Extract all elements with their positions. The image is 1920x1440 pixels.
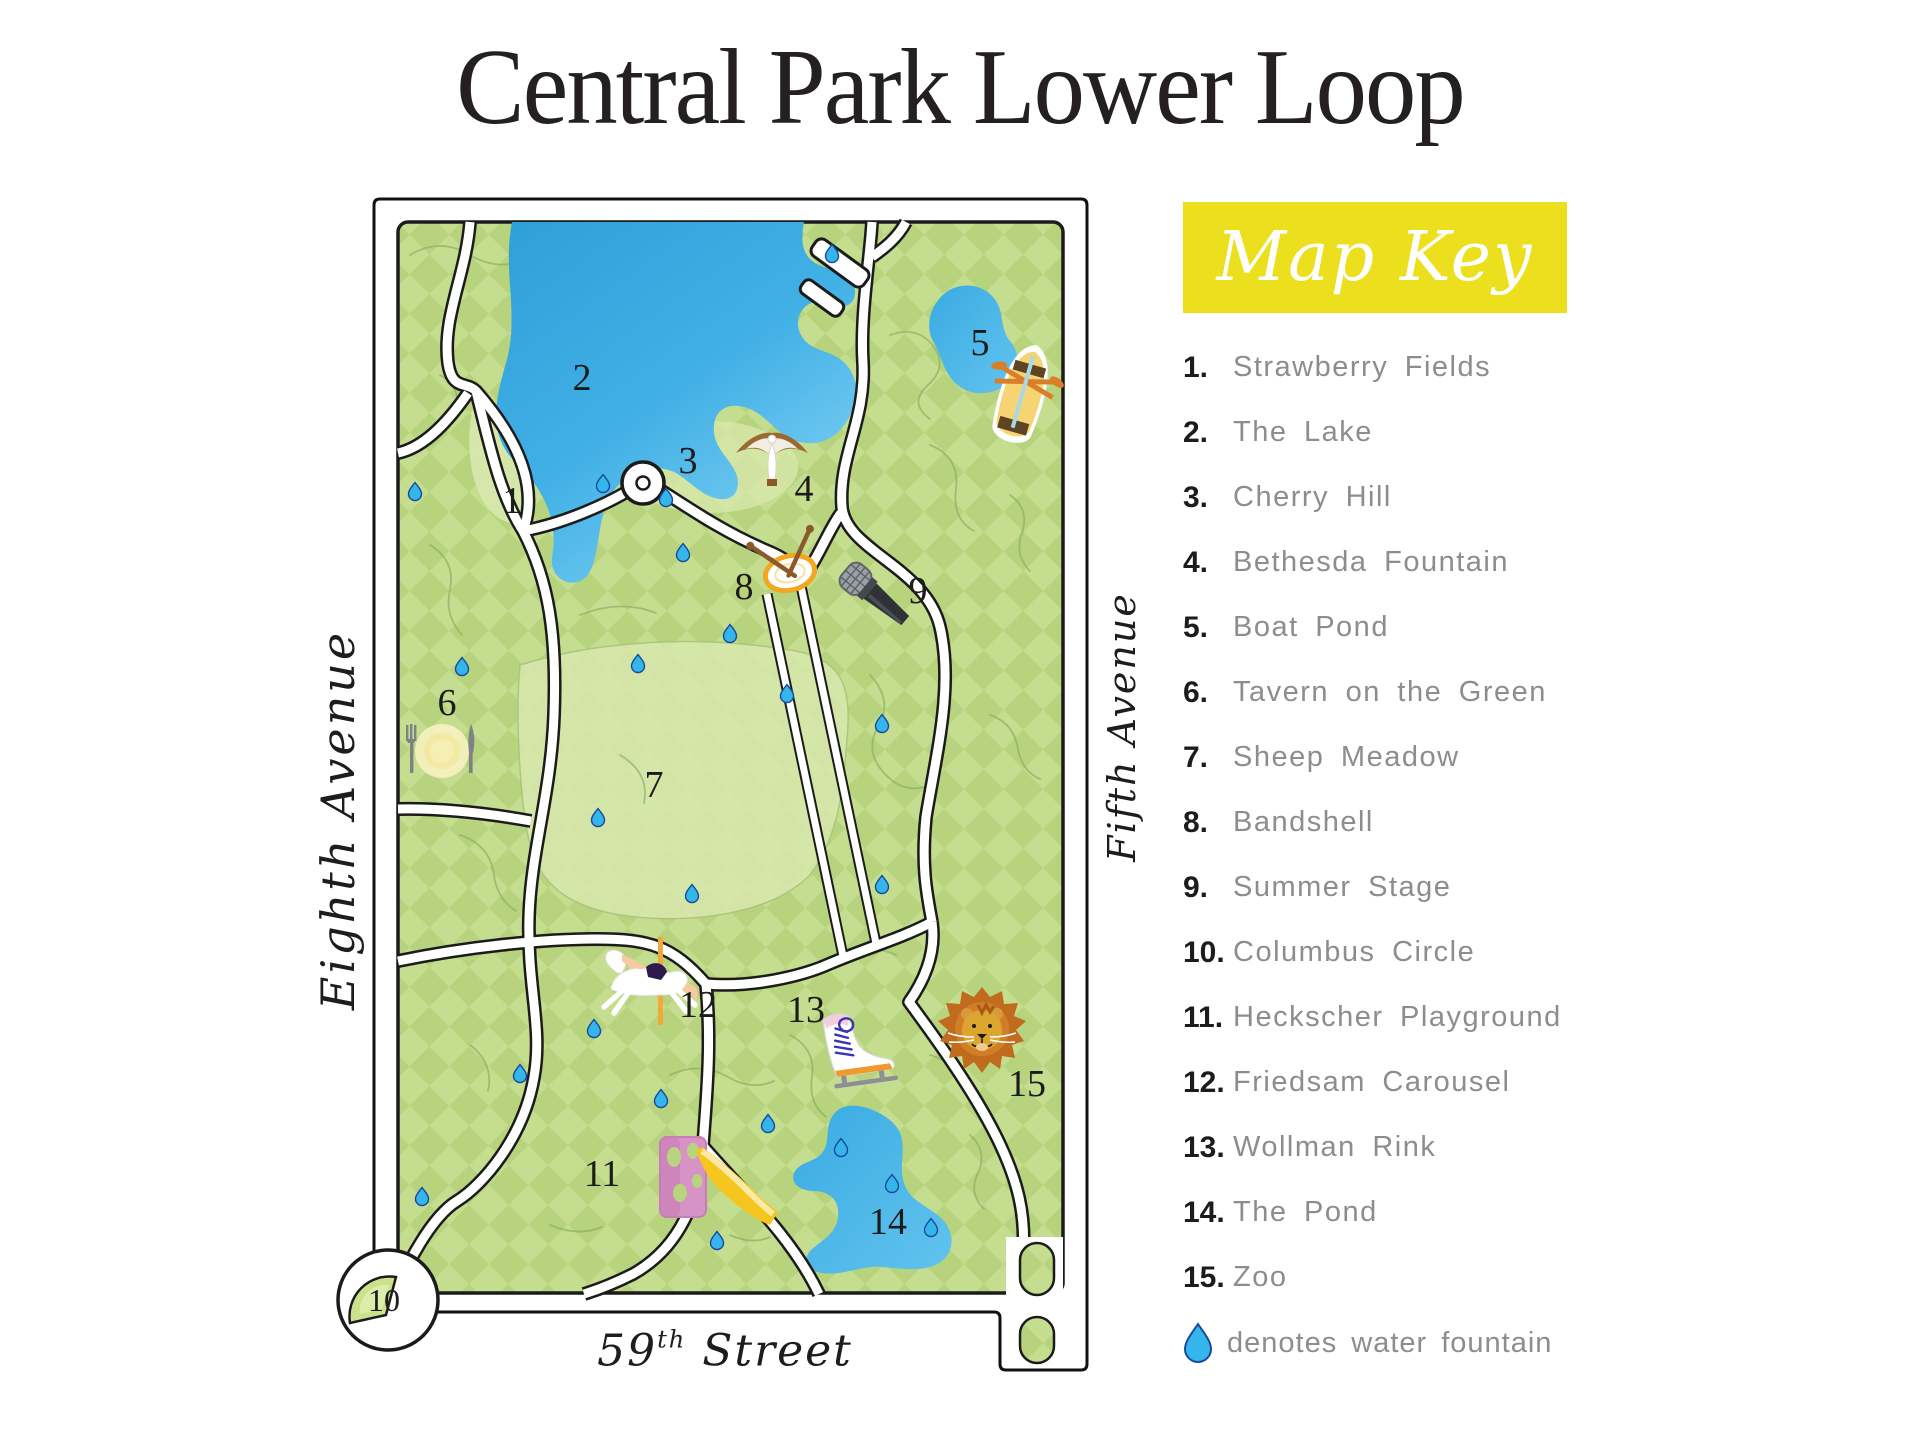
key-item-label: Heckscher Playground <box>1233 1001 1562 1034</box>
key-item-number: 4. <box>1183 546 1233 580</box>
map-marker-4: 4 <box>795 468 814 510</box>
sheep-meadow-lawn <box>518 642 848 919</box>
key-item-number: 1. <box>1183 351 1233 385</box>
key-item-number: 11. <box>1183 1001 1233 1035</box>
key-item-number: 6. <box>1183 676 1233 710</box>
key-item-label: Cherry Hill <box>1233 481 1392 514</box>
key-item-label: Bandshell <box>1233 806 1374 839</box>
key-item-label: Tavern on the Green <box>1233 676 1547 709</box>
street-number: 59 <box>597 1326 657 1377</box>
map-marker-2: 2 <box>573 357 592 399</box>
key-item-number: 5. <box>1183 611 1233 645</box>
59th-street-label: 59th Street <box>597 1326 853 1377</box>
key-item-5: 5.Boat Pond <box>1183 595 1703 660</box>
key-item-7: 7.Sheep Meadow <box>1183 725 1703 790</box>
key-item-number: 8. <box>1183 806 1233 840</box>
key-item-number: 14. <box>1183 1196 1233 1230</box>
map-marker-8: 8 <box>735 566 754 608</box>
key-item-number: 9. <box>1183 871 1233 905</box>
map-marker-7: 7 <box>645 764 664 806</box>
map-marker-15: 15 <box>1008 1063 1046 1105</box>
map-marker-14: 14 <box>869 1201 907 1243</box>
poster-page: Central Park Lower Loop <box>0 0 1920 1440</box>
key-item-9: 9.Summer Stage <box>1183 855 1703 920</box>
key-item-11: 11.Heckscher Playground <box>1183 985 1703 1050</box>
map-key-list: 1.Strawberry Fields 2.The Lake 3.Cherry … <box>1183 335 1703 1310</box>
key-item-number: 10. <box>1183 936 1233 970</box>
key-item-number: 15. <box>1183 1261 1233 1295</box>
key-item-4: 4.Bethesda Fountain <box>1183 530 1703 595</box>
key-item-label: Summer Stage <box>1233 871 1451 904</box>
street-name: Street <box>702 1326 853 1377</box>
central-park-map: 1 2 3 4 5 6 7 8 9 10 11 12 13 14 15 <box>330 195 1090 1375</box>
map-marker-6: 6 <box>438 682 457 724</box>
map-marker-12: 12 <box>679 984 717 1026</box>
key-item-13: 13.Wollman Rink <box>1183 1115 1703 1180</box>
key-item-number: 3. <box>1183 481 1233 515</box>
key-item-number: 12. <box>1183 1066 1233 1100</box>
key-item-2: 2.The Lake <box>1183 400 1703 465</box>
page-title: Central Park Lower Loop <box>48 26 1872 150</box>
key-item-6: 6.Tavern on the Green <box>1183 660 1703 725</box>
water-fountain-note: denotes water fountain <box>1183 1322 1703 1364</box>
key-item-label: Wollman Rink <box>1233 1131 1436 1164</box>
key-item-10: 10.Columbus Circle <box>1183 920 1703 985</box>
map-marker-13: 13 <box>787 989 825 1031</box>
water-fountain-note-label: denotes water fountain <box>1227 1327 1552 1360</box>
key-item-1: 1.Strawberry Fields <box>1183 335 1703 400</box>
map-key-header: Map Key <box>1183 202 1567 313</box>
map-marker-10: 10 <box>368 1282 400 1318</box>
map-marker-9: 9 <box>909 570 928 612</box>
map-marker-3: 3 <box>679 440 698 482</box>
key-item-label: Columbus Circle <box>1233 936 1475 969</box>
key-item-number: 13. <box>1183 1131 1233 1165</box>
key-item-14: 14.The Pond <box>1183 1180 1703 1245</box>
map-marker-1: 1 <box>503 480 522 522</box>
cherry-hill-roundabout <box>622 462 664 504</box>
key-item-label: Friedsam Carousel <box>1233 1066 1510 1099</box>
key-item-label: Zoo <box>1233 1261 1287 1294</box>
fifth-avenue-label: Fifth Avenue <box>1100 592 1144 862</box>
key-item-number: 2. <box>1183 416 1233 450</box>
eighth-avenue-label: Eighth Avenue <box>311 630 365 1010</box>
key-item-label: Strawberry Fields <box>1233 351 1491 384</box>
key-item-number: 7. <box>1183 741 1233 775</box>
map-key-panel: Map Key 1.Strawberry Fields 2.The Lake 3… <box>1183 202 1703 1364</box>
key-item-label: The Pond <box>1233 1196 1378 1229</box>
key-item-15: 15.Zoo <box>1183 1245 1703 1310</box>
key-item-3: 3.Cherry Hill <box>1183 465 1703 530</box>
key-item-label: Boat Pond <box>1233 611 1389 644</box>
key-item-label: Bethesda Fountain <box>1233 546 1509 579</box>
map-key-title: Map Key <box>1217 224 1534 292</box>
key-item-8: 8.Bandshell <box>1183 790 1703 855</box>
key-item-label: The Lake <box>1233 416 1373 449</box>
water-drop-icon <box>1183 1322 1213 1364</box>
key-item-12: 12.Friedsam Carousel <box>1183 1050 1703 1115</box>
key-item-label: Sheep Meadow <box>1233 741 1460 774</box>
street-ordinal: th <box>657 1326 686 1354</box>
map-marker-11: 11 <box>584 1153 621 1195</box>
map-marker-5: 5 <box>971 322 990 364</box>
